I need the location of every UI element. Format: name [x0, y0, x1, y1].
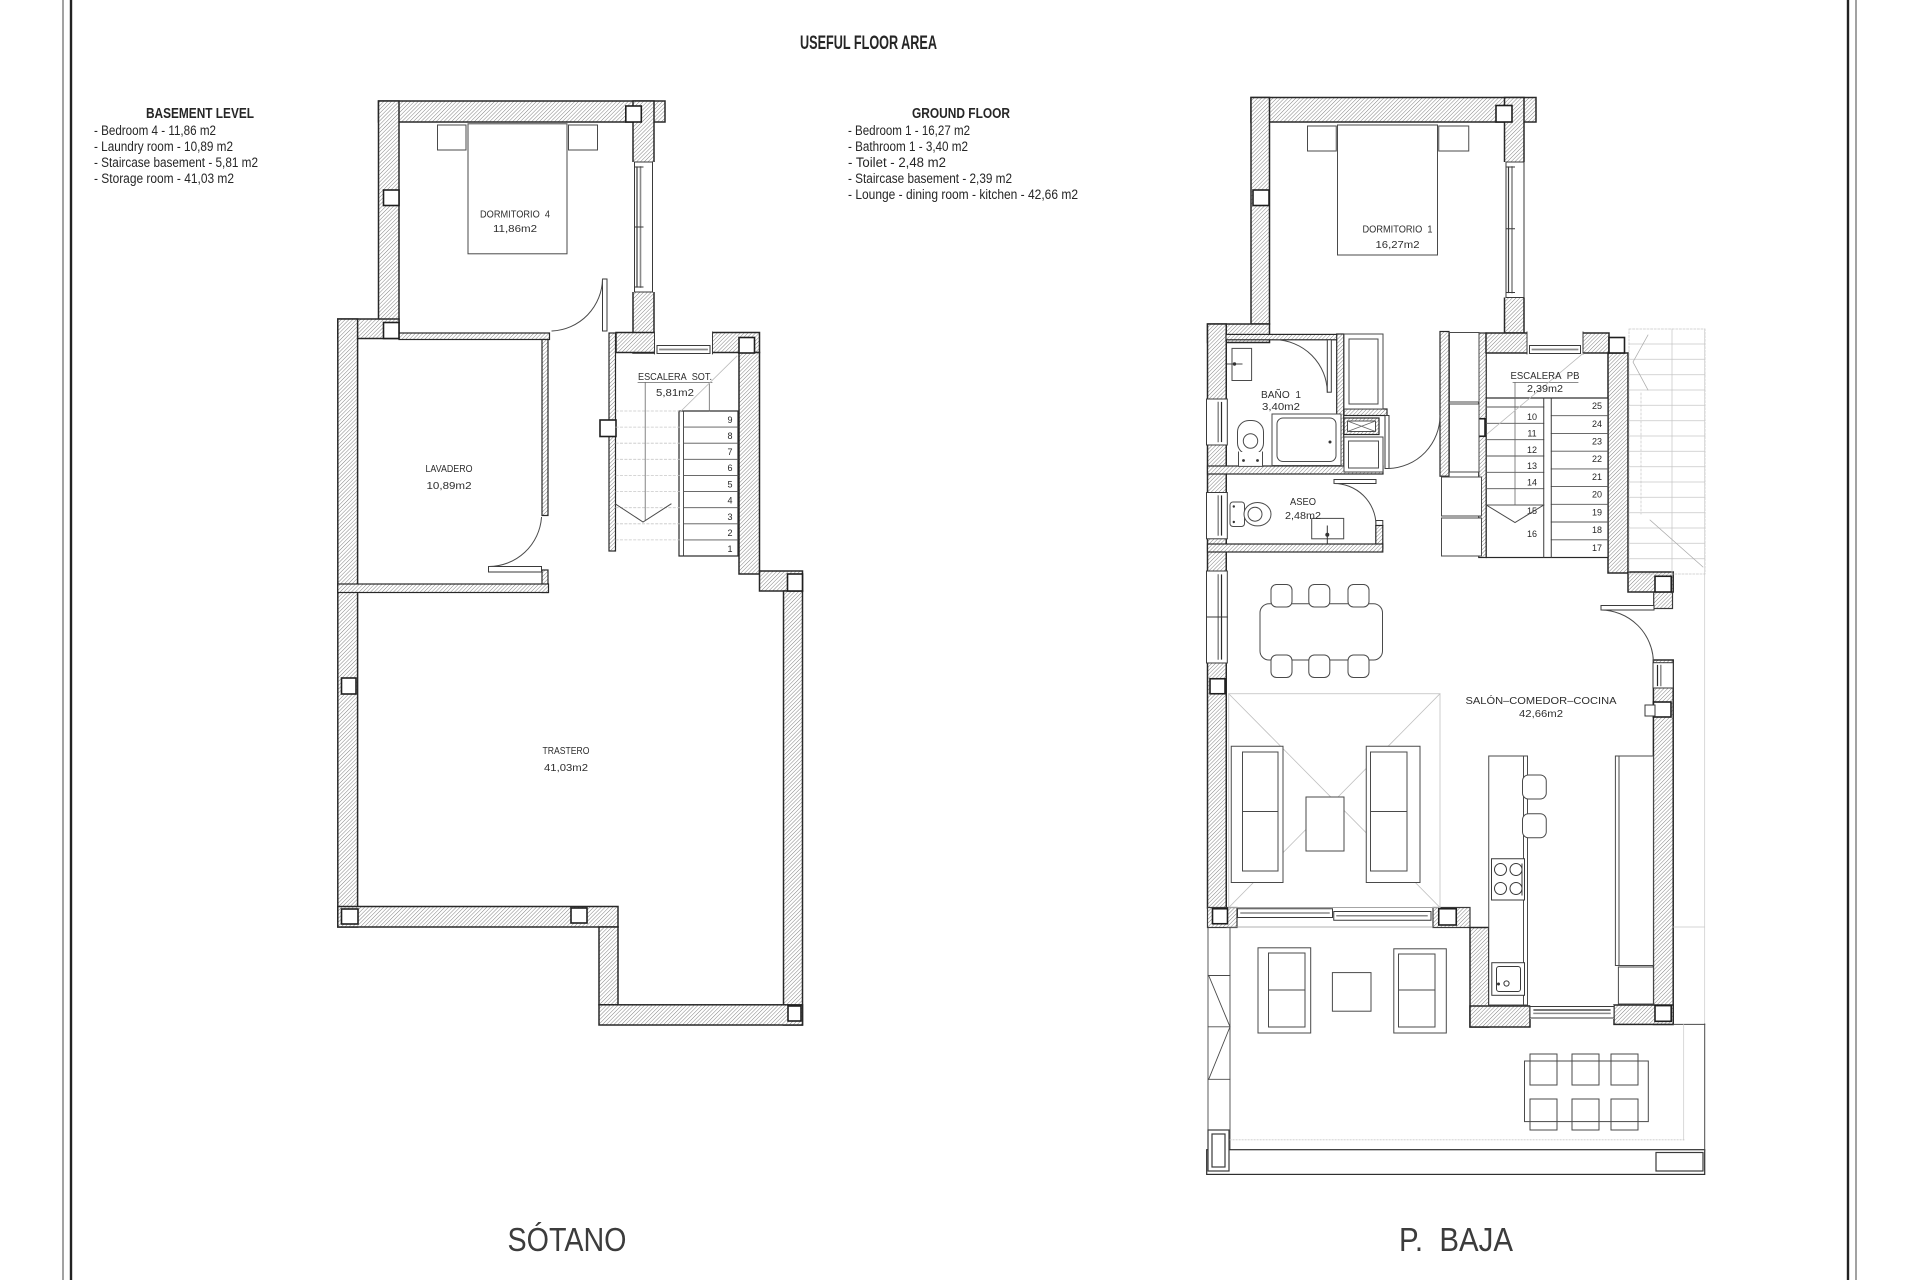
svg-text:- Toilet - 2,48 m2: - Toilet - 2,48 m2 — [848, 155, 946, 171]
svg-text:10: 10 — [1527, 412, 1537, 422]
svg-text:16: 16 — [1527, 529, 1537, 539]
svg-text:- Bedroom 4 - 11,86 m2: - Bedroom 4 - 11,86 m2 — [94, 123, 216, 139]
svg-text:ASEO: ASEO — [1290, 497, 1316, 508]
svg-text:11: 11 — [1527, 429, 1536, 439]
svg-text:ESCALERA SOT.: ESCALERA SOT. — [638, 372, 712, 383]
svg-text:23: 23 — [1592, 437, 1602, 447]
svg-text:9: 9 — [727, 415, 732, 425]
svg-text:P. BAJA: P. BAJA — [1399, 1221, 1513, 1258]
svg-text:4: 4 — [727, 496, 732, 506]
svg-text:20: 20 — [1592, 490, 1602, 500]
svg-text:ESCALERA PB: ESCALERA PB — [1511, 371, 1580, 382]
svg-text:21: 21 — [1592, 472, 1602, 482]
svg-text:42,66m2: 42,66m2 — [1519, 709, 1563, 720]
svg-text:5,81m2: 5,81m2 — [656, 388, 694, 399]
svg-text:SALÓN–COMEDOR–COCINA: SALÓN–COMEDOR–COCINA — [1466, 694, 1617, 707]
svg-text:8: 8 — [727, 431, 732, 441]
svg-text:LAVADERO: LAVADERO — [426, 464, 473, 475]
svg-text:6: 6 — [727, 463, 732, 473]
svg-text:- Lounge - dining room - kitch: - Lounge - dining room - kitchen - 42,66… — [848, 187, 1078, 203]
svg-text:19: 19 — [1592, 508, 1602, 518]
svg-text:1: 1 — [727, 544, 732, 554]
svg-text:TRASTERO: TRASTERO — [543, 746, 590, 757]
svg-text:24: 24 — [1592, 419, 1602, 429]
svg-text:SÓTANO: SÓTANO — [508, 1221, 627, 1258]
svg-text:- Staircase basement - 2,39 m2: - Staircase basement - 2,39 m2 — [848, 171, 1012, 187]
svg-text:13: 13 — [1527, 461, 1537, 471]
svg-text:2: 2 — [727, 528, 732, 538]
svg-text:3,40m2: 3,40m2 — [1262, 402, 1300, 413]
svg-text:- Bedroom 1 - 16,27 m2: - Bedroom 1 - 16,27 m2 — [848, 123, 970, 139]
svg-text:17: 17 — [1592, 543, 1602, 553]
svg-text:18: 18 — [1592, 525, 1602, 535]
svg-text:- Staircase basement - 5,81 m2: - Staircase basement - 5,81 m2 — [94, 155, 258, 171]
svg-text:25: 25 — [1592, 401, 1602, 411]
svg-text:10,89m2: 10,89m2 — [427, 481, 473, 492]
svg-text:- Bathroom 1 - 3,40 m2: - Bathroom 1 - 3,40 m2 — [848, 139, 968, 155]
svg-text:- Storage room - 41,03 m2: - Storage room - 41,03 m2 — [94, 171, 234, 187]
svg-text:2,39m2: 2,39m2 — [1527, 384, 1563, 395]
svg-text:22: 22 — [1592, 454, 1602, 464]
svg-text:12: 12 — [1527, 445, 1537, 455]
svg-text:7: 7 — [727, 447, 732, 457]
svg-text:DORMITORIO 4: DORMITORIO 4 — [480, 210, 550, 221]
svg-text:2,48m2: 2,48m2 — [1285, 511, 1321, 522]
svg-text:5: 5 — [727, 480, 732, 490]
svg-text:USEFUL FLOOR AREA: USEFUL FLOOR AREA — [800, 33, 937, 54]
svg-text:16,27m2: 16,27m2 — [1376, 240, 1420, 251]
svg-text:BAÑO 1: BAÑO 1 — [1261, 388, 1301, 401]
svg-text:14: 14 — [1527, 478, 1537, 488]
svg-text:11,86m2: 11,86m2 — [493, 224, 537, 235]
svg-text:- Laundry room - 10,89 m2: - Laundry room - 10,89 m2 — [94, 139, 233, 155]
svg-text:DORMITORIO 1: DORMITORIO 1 — [1363, 225, 1433, 236]
svg-text:3: 3 — [727, 512, 732, 522]
svg-text:GROUND FLOOR: GROUND FLOOR — [912, 106, 1010, 122]
svg-text:BASEMENT LEVEL: BASEMENT LEVEL — [146, 106, 254, 122]
svg-text:41,03m2: 41,03m2 — [544, 763, 588, 774]
